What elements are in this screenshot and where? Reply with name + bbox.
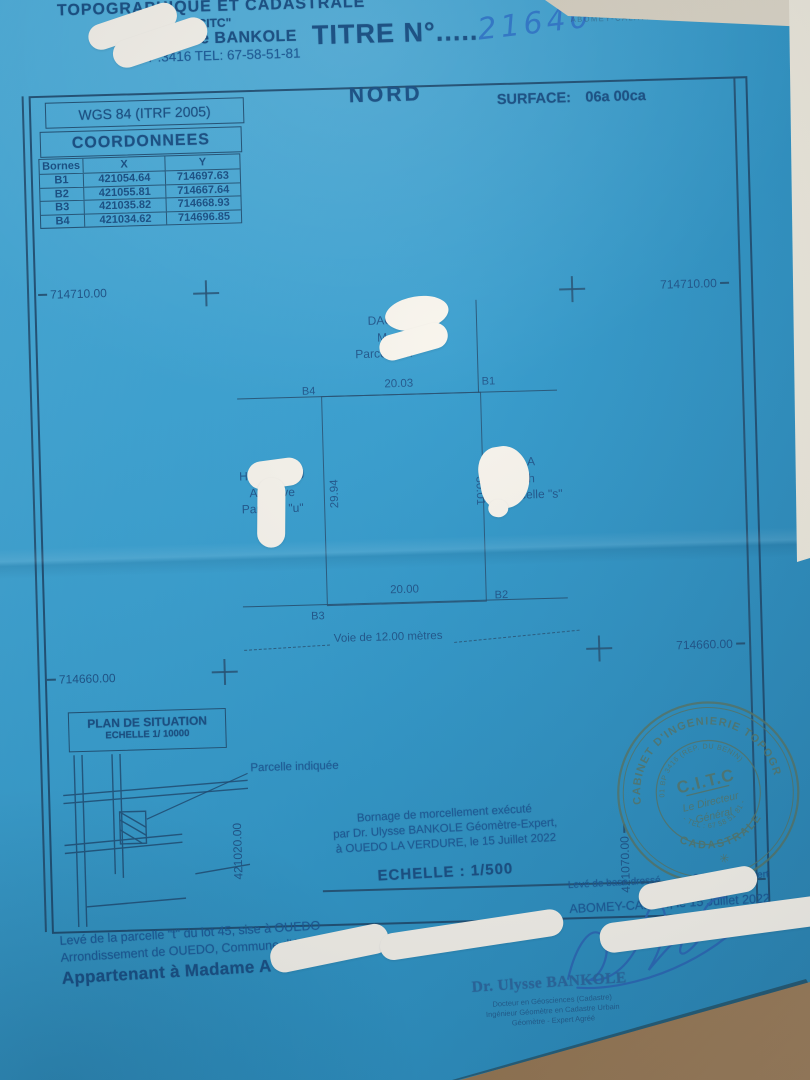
grid-cross: [559, 276, 586, 303]
datum-box: WGS 84 (ITRF 2005): [45, 97, 245, 129]
grid-label-sw: 714660.00: [47, 671, 116, 687]
corner-label-b2: B2: [495, 589, 509, 601]
col-bornes: Bornes: [39, 159, 83, 174]
title-block: TITRE N°.....21640: [311, 9, 594, 52]
grid-label-nw: 714710.00: [38, 286, 107, 302]
callout-leader-line: [139, 768, 255, 826]
blue-survey-paper: TOPOGRAPHIQUE ET CADASTRALE "CITC" Dr. U…: [0, 0, 810, 1080]
coordinates-table: Bornes X Y B1 421054.64 714697.63 B2 421…: [38, 153, 242, 229]
surface-value: 06a 00ca: [585, 88, 646, 106]
grid-cross: [193, 280, 220, 307]
north-label: NORD: [320, 81, 451, 109]
corner-label-b1: B1: [482, 375, 496, 387]
photo-of-document: TOPOGRAPHIQUE ET CADASTRALE "CITC" Dr. U…: [0, 0, 810, 1080]
coordinates-title: COORDONNEES: [72, 131, 211, 152]
situation-box: PLAN DE SITUATION ECHELLE 1/ 10000: [68, 708, 227, 752]
stamp-star: ✳: [718, 851, 731, 867]
grid-cross: [586, 635, 613, 662]
grid-cross: [211, 659, 238, 686]
grid-label-se: 714660.00: [676, 636, 745, 652]
title-dots: .....: [435, 16, 478, 47]
whiteout-mark: [257, 478, 285, 548]
corner-label-b4: B4: [302, 385, 316, 397]
parcel-outline: [321, 392, 487, 606]
cell-x: 421034.62: [85, 211, 167, 227]
grid-label-ne: 714710.00: [660, 276, 729, 292]
cell-borne: B3: [41, 200, 85, 215]
situation-callout: Parcelle indiquée: [250, 760, 339, 774]
cell-y: 714696.85: [167, 209, 241, 225]
corner-label-b3: B3: [311, 610, 325, 622]
datum-label: WGS 84 (ITRF 2005): [78, 103, 211, 123]
cell-borne: B4: [41, 213, 85, 228]
title-label: TITRE N°: [312, 17, 437, 50]
cell-borne: B1: [40, 173, 84, 188]
dimension-top: 20.03: [375, 377, 423, 390]
surface-label: SURFACE:: [497, 90, 572, 108]
dimension-bottom: 20.00: [380, 583, 428, 596]
cell-borne: B2: [40, 186, 84, 201]
